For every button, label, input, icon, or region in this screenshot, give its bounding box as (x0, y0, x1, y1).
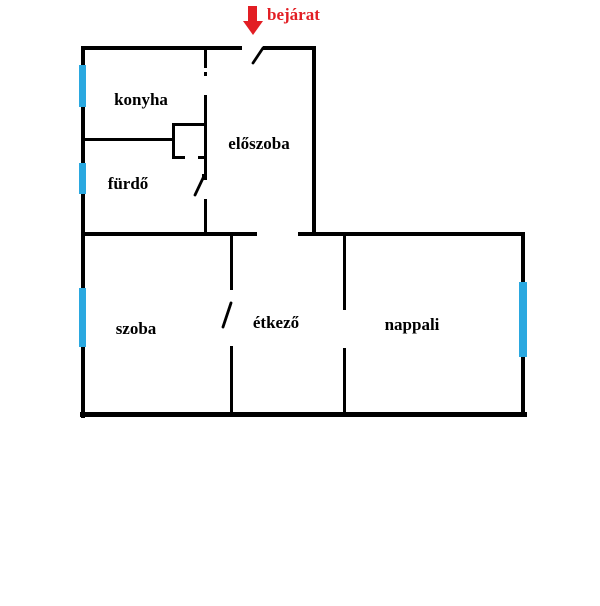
wall-top-left (82, 46, 242, 50)
window-szoba (79, 288, 86, 347)
floorplan-canvas: bejárat konyhaelőszobafürdőszobaétkezőna… (0, 0, 600, 606)
furdo-door-hinge (202, 174, 207, 180)
wall-szoba-etkezo-bottom (230, 346, 233, 413)
entrance-arrow-icon (248, 6, 257, 22)
room-label-nappali: nappali (385, 315, 440, 335)
wall-eloszoba-top (204, 46, 207, 68)
wall-upper-right (312, 46, 316, 236)
wall-middle-right (298, 232, 525, 236)
closet-bottom-right (198, 156, 207, 159)
entrance-arrow-icon-head (243, 21, 263, 35)
wall-bottom (80, 412, 527, 417)
room-label-eloszoba: előszoba (228, 134, 289, 154)
closet-top (172, 123, 207, 126)
wall-szoba-etkezo-top (230, 236, 233, 290)
closet-left (172, 123, 175, 159)
room-label-konyha: konyha (114, 90, 168, 110)
door-swings-layer (0, 0, 600, 606)
closet-bottom-left (172, 156, 185, 159)
entrance-label: bejárat (267, 5, 320, 25)
wall-eloszoba-bottom (204, 199, 207, 236)
room-label-furdo: fürdő (108, 174, 149, 194)
window-nappali (519, 282, 527, 357)
window-konyha (79, 65, 86, 107)
wall-etkezo-nappali-top (343, 236, 346, 310)
wall-eloszoba-mid (204, 95, 207, 176)
wall-konyha-furdo (82, 138, 173, 141)
wall-etkezo-nappali-bottom (343, 348, 346, 413)
wall-top-right (263, 46, 316, 50)
room-label-szoba: szoba (116, 319, 157, 339)
konyha-door-dot (204, 72, 207, 76)
room-label-etkezo: étkező (253, 313, 299, 333)
szoba-door-leaf (223, 303, 231, 327)
entrance-door-leaf (253, 48, 263, 63)
window-furdo (79, 163, 86, 194)
